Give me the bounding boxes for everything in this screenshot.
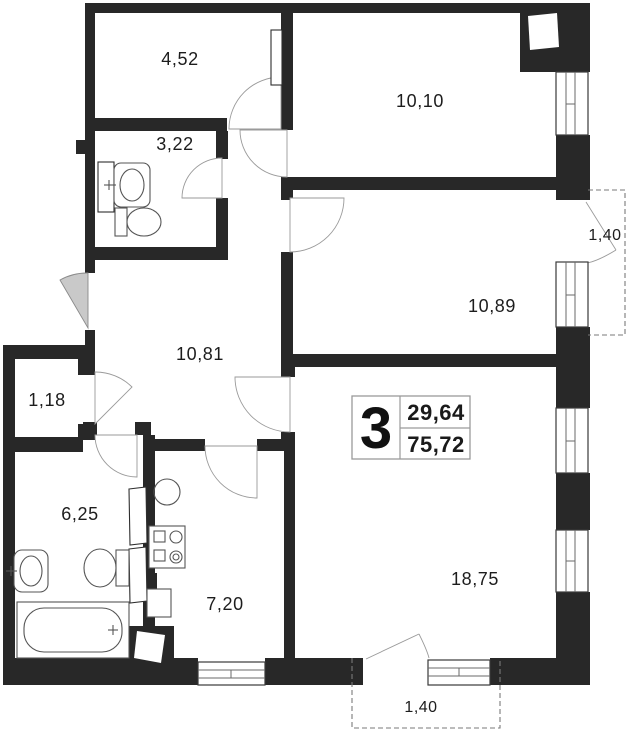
wall-segment (78, 359, 95, 375)
badge-area-top: 29,64 (407, 400, 465, 425)
window (198, 662, 265, 685)
wall-segment (281, 252, 293, 354)
wall-segment (216, 198, 228, 247)
wall-segment (556, 327, 590, 408)
door-swing (240, 130, 287, 177)
badge-area-bottom: 75,72 (407, 432, 465, 457)
room-label-wardrobe: 1,18 (28, 390, 65, 410)
door-swing (290, 198, 344, 252)
wall-segment (556, 592, 590, 685)
door-leaf (98, 162, 114, 212)
wall-segment (3, 345, 95, 359)
door-swing (235, 377, 290, 432)
wall-segment (85, 118, 227, 131)
balcony-right-label: 1,40 (588, 227, 621, 244)
wall-segment (85, 13, 95, 273)
door-leaf (129, 547, 147, 603)
wall-segment (85, 3, 590, 13)
balcony-door-leaf (366, 634, 419, 659)
room-label-living: 18,75 (451, 569, 499, 589)
window (556, 72, 588, 135)
badge-rooms-count: 3 (360, 396, 392, 461)
wall-segment (281, 177, 586, 190)
wall-segment (15, 437, 83, 452)
balcony-right-outline (588, 190, 625, 335)
room-label-bedroom-top: 10,10 (396, 91, 444, 111)
balcony-door-arc (587, 250, 616, 263)
wall-segment (216, 131, 228, 159)
wall-segment (556, 473, 590, 530)
room-label-bedroom-right: 10,89 (468, 296, 516, 316)
vent-shaft-opening (134, 631, 165, 663)
floor-plan-svg: 4,52 3,22 10,10 10,89 10,81 1,18 6,25 7,… (0, 0, 629, 731)
room-label-wc: 3,22 (156, 134, 193, 154)
floor-plan: 4,52 3,22 10,10 10,89 10,81 1,18 6,25 7,… (0, 0, 629, 731)
door-leaf (271, 30, 282, 85)
window (556, 530, 588, 592)
door-swing (205, 446, 257, 498)
wall-segment (257, 439, 295, 451)
wall-segment (284, 446, 295, 658)
wall-segment (85, 247, 228, 260)
kitchen-sink-icon (154, 479, 180, 505)
toilet-icon (84, 549, 129, 587)
window (556, 262, 588, 327)
bathtub-icon (17, 602, 129, 658)
wall-segment (135, 422, 151, 435)
balcony-bottom-label: 1,40 (404, 699, 437, 716)
window (428, 660, 490, 685)
counter-icon (147, 589, 171, 617)
wall-segment (3, 359, 15, 685)
door-swing (95, 372, 132, 424)
wall-tick (76, 140, 85, 154)
wall-segment (265, 658, 363, 685)
door-leaf (129, 487, 147, 545)
stove-icon (149, 526, 185, 568)
wall-segment (281, 367, 295, 377)
room-label-kitchen: 7,20 (206, 594, 243, 614)
door-swing (182, 158, 222, 198)
room-label-storage: 4,52 (161, 49, 198, 69)
toilet-icon (115, 208, 161, 236)
door-swing (95, 435, 137, 477)
shaft-opening (528, 13, 559, 50)
room-label-hallway: 10,81 (176, 344, 224, 364)
unit-badge: 3 29,64 75,72 (352, 396, 470, 461)
room-label-bathroom: 6,25 (61, 504, 98, 524)
window (556, 408, 588, 473)
entrance-door-swing (60, 273, 88, 328)
wall-segment (281, 354, 586, 367)
wall-segment (281, 13, 293, 130)
wall-segment (556, 135, 590, 200)
balcony-door-arc (419, 634, 429, 658)
